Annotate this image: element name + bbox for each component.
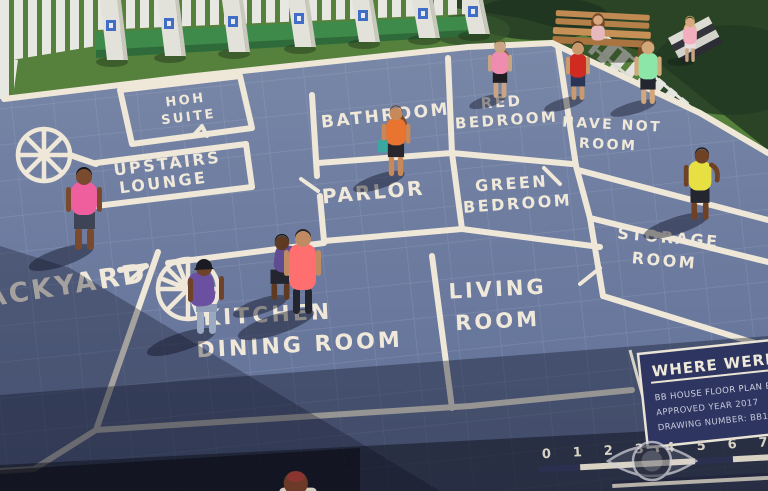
svg-text:1: 1 <box>572 445 582 460</box>
scene: HOH SUITE UPSTAIRS LOUNGE BATHROOM PARLO… <box>0 0 768 491</box>
svg-text:0: 0 <box>542 447 552 462</box>
room-label-living-room: ROOM <box>455 307 541 335</box>
room-label-have-not-room: ROOM <box>579 135 638 154</box>
person-woman-on-bench <box>591 13 605 40</box>
svg-text:2: 2 <box>603 444 613 459</box>
svg-text:5: 5 <box>696 439 706 454</box>
tv-screenshot-frame: HOH SUITE UPSTAIRS LOUNGE BATHROOM PARLO… <box>0 0 768 491</box>
held-object <box>378 140 387 153</box>
room-label-living-room: LIVING <box>448 274 547 303</box>
svg-text:7: 7 <box>758 435 768 450</box>
svg-text:6: 6 <box>727 437 737 452</box>
title-block: WHERE WERE Y BB HOUSE FLOOR PLAN BLUE AP… <box>638 338 768 448</box>
wagon-wheel-drawing <box>18 129 70 181</box>
